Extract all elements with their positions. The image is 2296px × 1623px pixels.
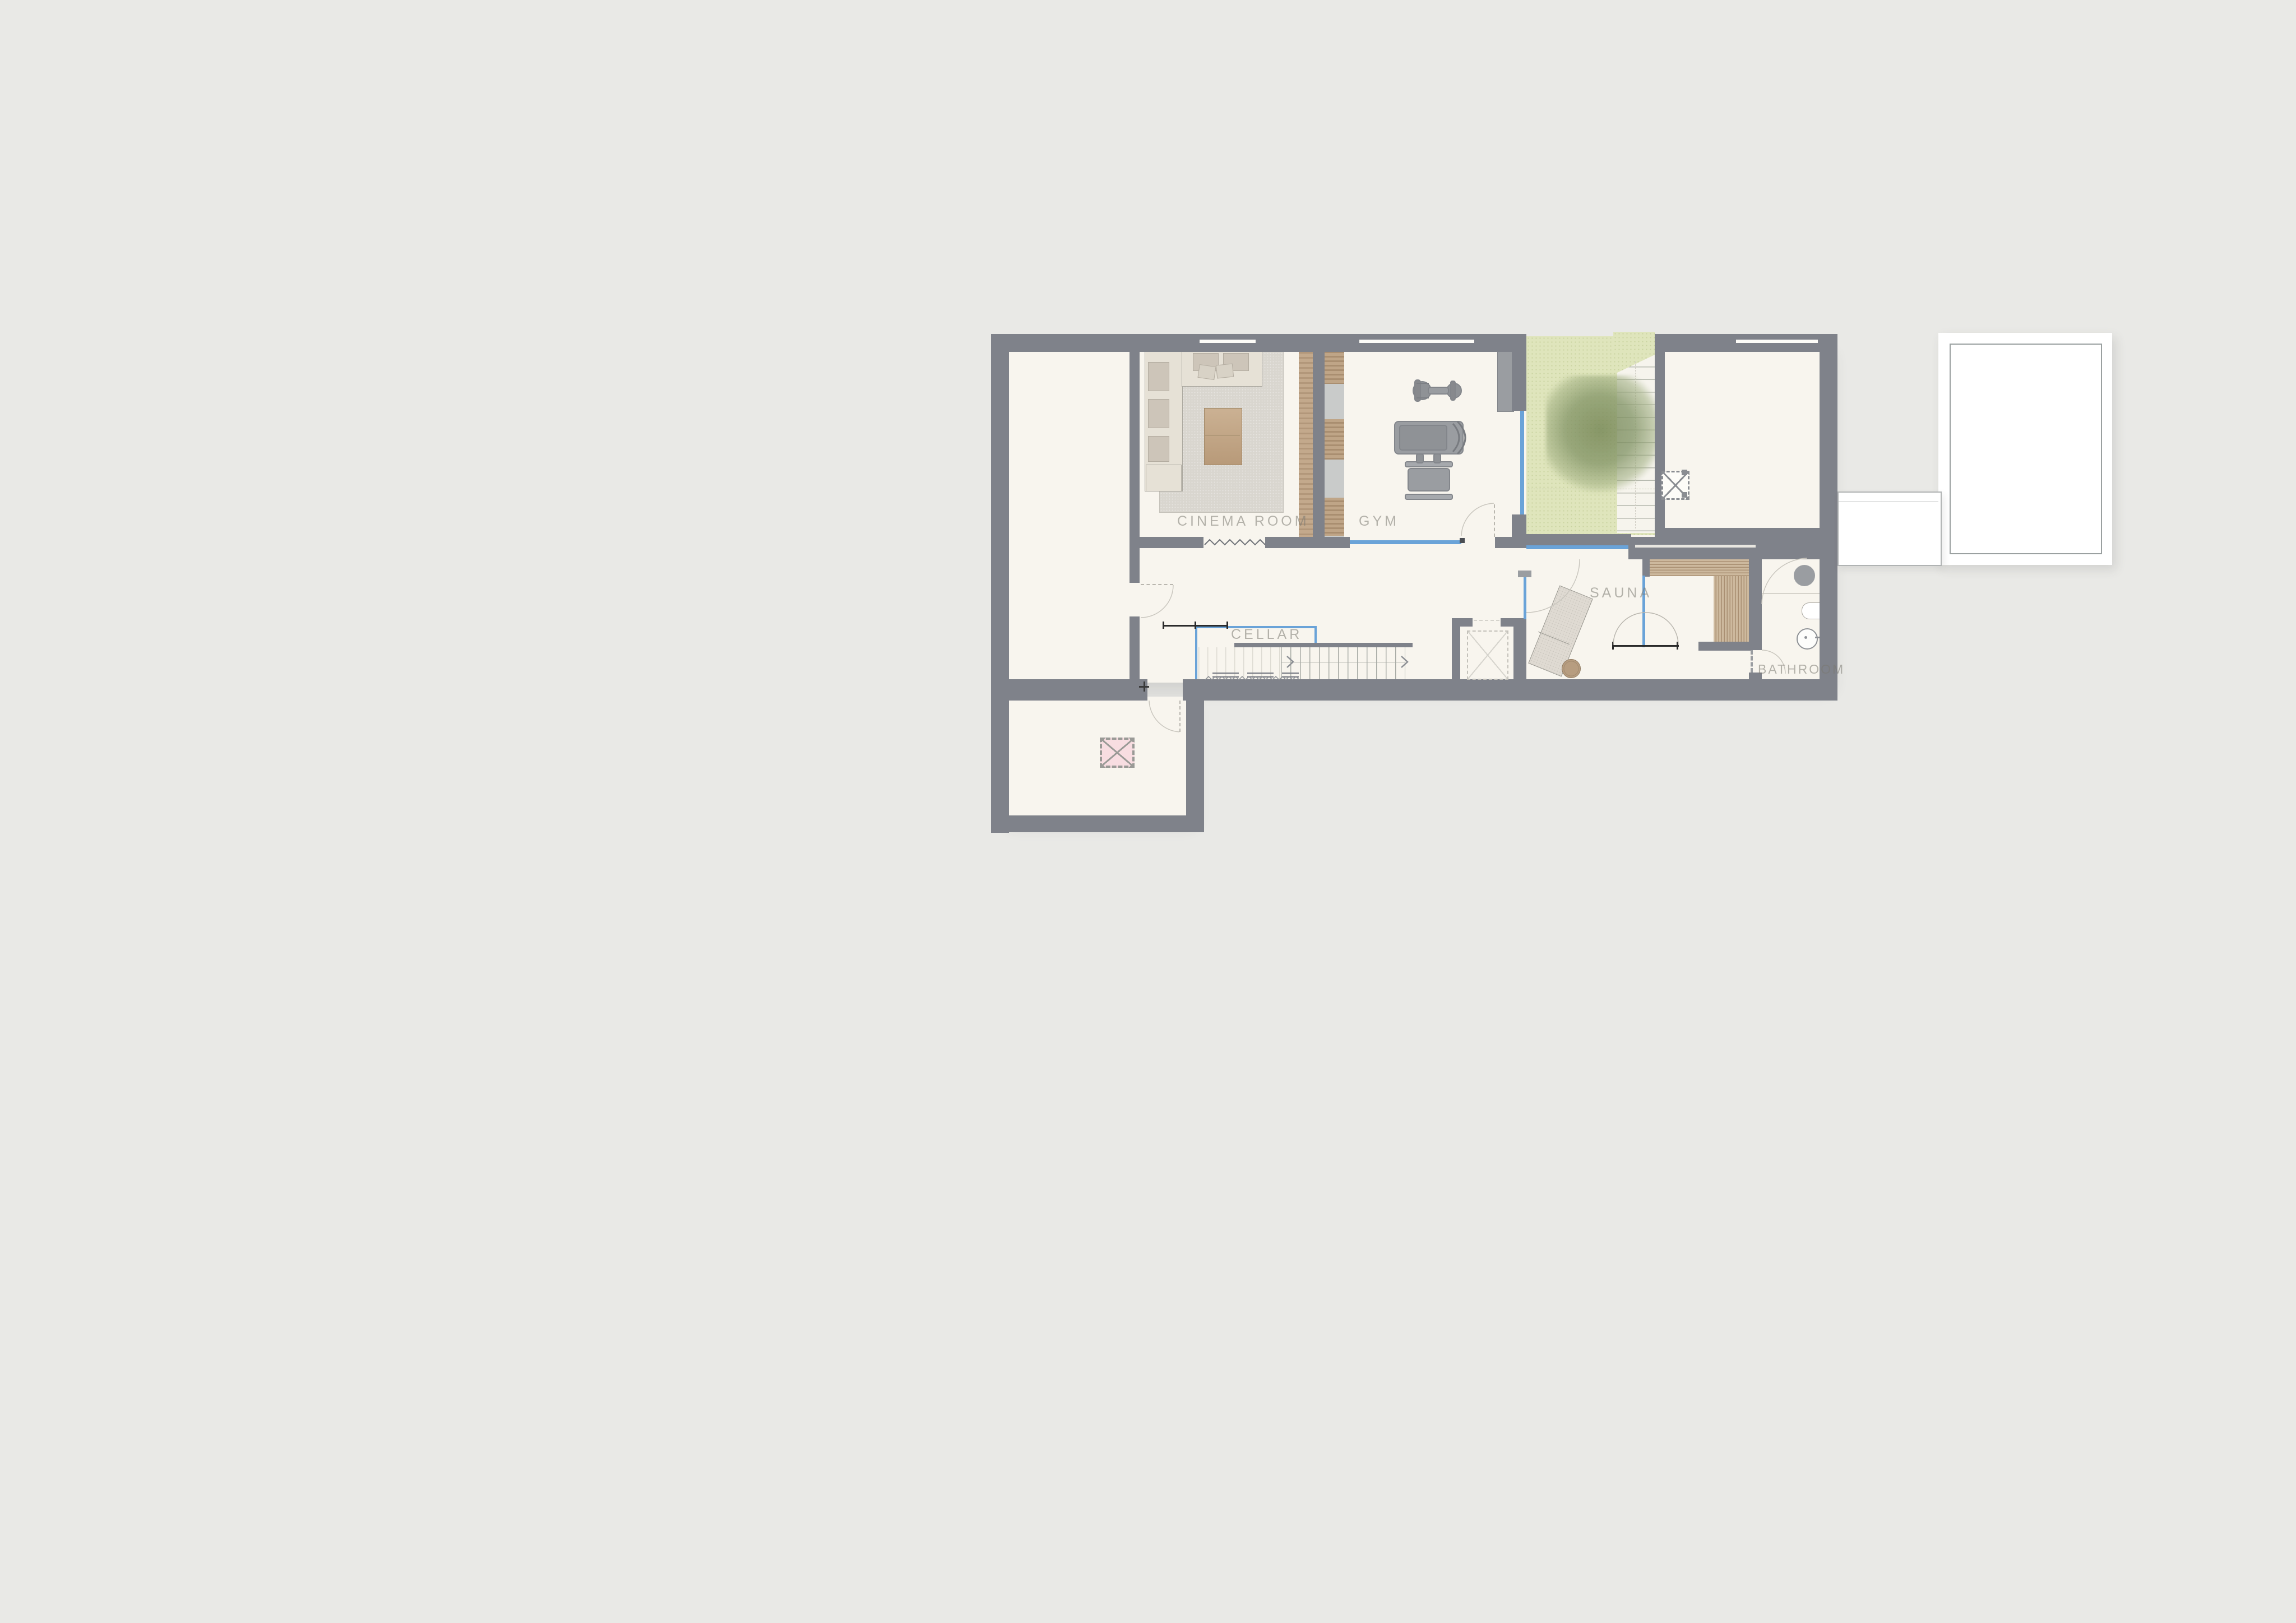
stair-treads <box>1281 647 1405 679</box>
sauna-door-tick <box>1677 642 1678 650</box>
outer-wall-top-right <box>1655 334 1837 352</box>
gym-courtyard-wall-bottom <box>1512 514 1526 539</box>
cellar-shelf <box>1247 673 1274 678</box>
coffee-table-seam <box>1205 435 1240 436</box>
gym-corridor-glass <box>1350 540 1461 544</box>
firewood-niche <box>1325 498 1344 536</box>
corridor-wall-bottom-b <box>1183 679 1837 701</box>
sofa-cushion <box>1148 436 1169 462</box>
sauna-side-table <box>1562 659 1581 678</box>
cellar-glass-left <box>1195 626 1197 680</box>
sauna-room-wall-top <box>1628 537 1823 559</box>
chimney-shaft-symbol <box>1100 738 1135 768</box>
bathroom-door-dashes <box>1751 650 1753 673</box>
stair-mid-line <box>1281 662 1405 662</box>
outer-wall-right <box>1820 334 1837 701</box>
dimension-tick <box>1195 622 1196 629</box>
bottom-room-floor-slab <box>1003 697 1188 818</box>
gym-courtyard-wall-top <box>1512 336 1526 411</box>
outer-wall-top-left <box>991 334 1526 352</box>
left-room-door-leaf <box>1141 584 1173 585</box>
shower-partition-line <box>1762 593 1820 594</box>
exterior-window-well <box>1837 491 1942 566</box>
outer-wall-left <box>991 334 1009 833</box>
room-label-gym: GYM <box>1359 513 1399 530</box>
room-label-cellar: CELLAR <box>1231 627 1302 643</box>
sofa-throw-pillow <box>1216 363 1234 378</box>
firewood-niche <box>1325 419 1344 460</box>
cellar-shelf <box>1282 673 1299 678</box>
bottom-room-wall-bottom <box>991 815 1204 832</box>
stair-guard-rail <box>1234 643 1413 647</box>
shaft-void-symbol <box>1467 630 1508 680</box>
wall-hung-toilet <box>1802 602 1821 619</box>
bottom-room-door-leaf <box>1179 701 1181 732</box>
bathroom-wall-left-upper <box>1749 559 1762 650</box>
corridor-wall-bottom-a <box>1003 679 1147 701</box>
sauna-door-line <box>1613 645 1679 647</box>
cellar-shelf <box>1212 673 1239 678</box>
courtyard-dashed-line <box>1528 489 1655 489</box>
sauna-bench-right <box>1714 576 1751 643</box>
door-hardware-mark <box>1144 681 1145 692</box>
sliding-door-pocket <box>1635 545 1756 548</box>
washbasin-drain <box>1804 636 1807 639</box>
shaft-flange-right <box>1501 618 1526 627</box>
dimension-tick <box>1163 622 1164 629</box>
duct-shaft-corner <box>1682 492 1687 498</box>
gym-courtyard-glass <box>1520 411 1524 514</box>
cinema-media-wood-wall <box>1299 349 1313 537</box>
floor-plan-canvas: CINEMA ROOM GYM CELLAR SAUNA BATHROOM <box>0 0 2296 1623</box>
sofa-cushion <box>1148 362 1169 391</box>
cinema-sofa-chaise <box>1146 465 1182 491</box>
room-label-sauna: SAUNA <box>1590 585 1652 601</box>
sofa-cushion <box>1148 399 1169 428</box>
courtyard-tree <box>1546 375 1664 493</box>
room-label-cinema: CINEMA ROOM <box>1177 513 1309 530</box>
shaft-flange-left <box>1452 618 1473 627</box>
exterior-window-well-line <box>1839 502 1938 502</box>
left-room-wall-right-lower <box>1130 616 1140 679</box>
cinema-corridor-wall-a <box>1130 537 1203 548</box>
washbasin <box>1797 628 1818 650</box>
cinema-gym-partition <box>1313 347 1325 537</box>
courtyard-glass-bottom <box>1526 545 1631 549</box>
cinema-corridor-wall-b <box>1265 537 1350 548</box>
bathroom-stool <box>1794 565 1815 586</box>
window-gym <box>1359 340 1474 343</box>
sauna-door-tick <box>1612 642 1614 650</box>
cinema-coffee-table <box>1204 408 1242 465</box>
shaft-glass <box>1524 577 1526 619</box>
room-label-bathroom: BATHROOM <box>1758 662 1845 677</box>
window-right-room <box>1736 340 1818 343</box>
shaft-wall-right <box>1513 618 1526 679</box>
exterior-terrace-inner <box>1950 344 2102 554</box>
bottom-room-wall-right <box>1186 697 1204 832</box>
dimension-tick <box>1226 622 1228 629</box>
shaft-door-jamb <box>1518 571 1531 577</box>
window-cinema <box>1200 340 1256 343</box>
firewood-niche <box>1325 349 1344 384</box>
gym-door-leaf <box>1494 504 1495 537</box>
courtyard-notch <box>1613 332 1655 352</box>
duct-shaft-corner <box>1682 470 1687 475</box>
shaft-opening-dash <box>1474 620 1499 621</box>
courtyard-wall-bottom <box>1526 534 1631 545</box>
sofa-throw-pillow <box>1197 364 1216 380</box>
shaft-wall-left <box>1452 618 1460 679</box>
sauna-cabin-wall-stub-bottom <box>1698 642 1751 651</box>
gym-door-hinge-mark <box>1460 538 1465 543</box>
main-floor-slab <box>1003 346 1826 683</box>
left-room-wall-right-upper <box>1130 352 1140 583</box>
